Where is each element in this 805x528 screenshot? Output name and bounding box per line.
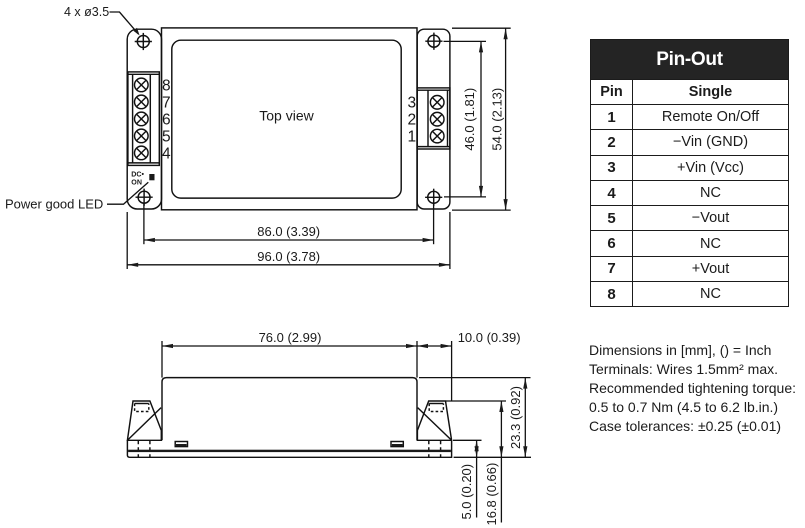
svg-text:16.8 (0.66): 16.8 (0.66) (484, 463, 499, 526)
svg-text:10.0 (0.39): 10.0 (0.39) (458, 330, 521, 345)
svg-text:5: 5 (162, 128, 171, 145)
svg-text:86.0 (3.39): 86.0 (3.39) (257, 224, 320, 239)
svg-text:ON: ON (131, 178, 142, 186)
svg-text:7: 7 (162, 94, 171, 111)
svg-text:2: 2 (407, 112, 416, 129)
svg-text:4 x ø3.5: 4 x ø3.5 (64, 5, 109, 19)
svg-text:23.3 (0.92): 23.3 (0.92) (508, 386, 523, 449)
svg-text:3: 3 (407, 95, 416, 112)
svg-text:4: 4 (162, 145, 171, 162)
svg-text:Power good LED: Power good LED (5, 197, 103, 212)
svg-text:54.0 (2.13): 54.0 (2.13) (489, 88, 504, 151)
svg-text:Top view: Top view (259, 107, 314, 123)
svg-text:8: 8 (162, 77, 171, 94)
svg-text:DC•: DC• (131, 171, 144, 179)
svg-text:46.0 (1.81): 46.0 (1.81) (462, 88, 477, 151)
svg-text:96.0 (3.78): 96.0 (3.78) (257, 249, 320, 264)
svg-text:5.0 (0.20): 5.0 (0.20) (459, 464, 474, 520)
svg-text:6: 6 (162, 111, 171, 128)
svg-text:76.0 (2.99): 76.0 (2.99) (259, 330, 322, 345)
svg-text:1: 1 (407, 129, 416, 146)
